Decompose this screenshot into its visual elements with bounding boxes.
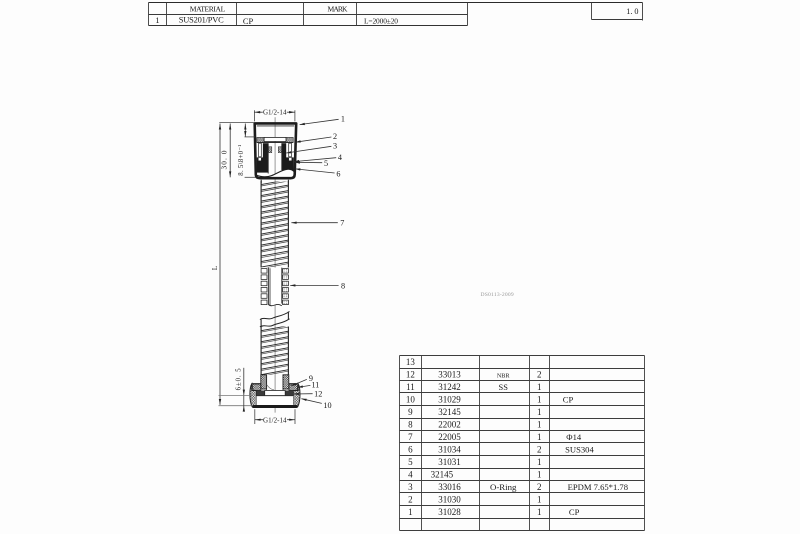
- svg-text:G1/2-14: G1/2-14: [263, 417, 287, 425]
- svg-text:SUS304: SUS304: [565, 444, 594, 454]
- svg-text:3: 3: [408, 482, 413, 492]
- svg-text:SUS201/PVC: SUS201/PVC: [179, 16, 224, 25]
- svg-text:2: 2: [333, 132, 337, 141]
- svg-text:1: 1: [537, 457, 542, 467]
- svg-text:31030: 31030: [438, 494, 461, 504]
- svg-text:12: 12: [314, 390, 322, 399]
- svg-text:2: 2: [537, 482, 542, 492]
- svg-text:30. 0: 30. 0: [220, 150, 228, 169]
- svg-text:MARK: MARK: [328, 5, 349, 14]
- svg-text:6±0. 5: 6±0. 5: [236, 368, 243, 391]
- svg-text:CP: CP: [243, 17, 254, 26]
- svg-text:1. 0: 1. 0: [626, 7, 638, 16]
- svg-text:1: 1: [537, 382, 542, 392]
- svg-text:1: 1: [537, 407, 542, 417]
- svg-text:NBR: NBR: [497, 372, 511, 379]
- svg-text:8: 8: [408, 419, 413, 429]
- svg-text:O-Ring: O-Ring: [490, 482, 517, 492]
- svg-text:L=2000±20: L=2000±20: [364, 16, 398, 25]
- svg-text:6: 6: [336, 170, 340, 179]
- svg-text:1: 1: [155, 16, 159, 25]
- svg-text:SS: SS: [499, 383, 509, 392]
- svg-text:CP: CP: [569, 507, 580, 517]
- svg-text:9: 9: [408, 407, 413, 417]
- svg-text:2: 2: [537, 444, 542, 454]
- svg-text:33016: 33016: [438, 482, 461, 492]
- svg-text:7: 7: [340, 219, 344, 228]
- svg-text:8. 5\8+0⁻¹: 8. 5\8+0⁻¹: [238, 145, 245, 176]
- svg-text:13: 13: [406, 357, 416, 367]
- svg-text:DS0113-2009: DS0113-2009: [481, 292, 514, 298]
- svg-text:31028: 31028: [438, 507, 461, 517]
- svg-text:12: 12: [406, 369, 415, 379]
- svg-text:5: 5: [324, 159, 328, 168]
- svg-text:31242: 31242: [438, 382, 461, 392]
- svg-text:EPDM 7.65*1.78: EPDM 7.65*1.78: [568, 482, 628, 492]
- svg-text:32145: 32145: [431, 469, 454, 479]
- svg-text:1: 1: [408, 507, 413, 517]
- svg-text:5: 5: [408, 457, 413, 467]
- svg-text:1: 1: [537, 432, 542, 442]
- svg-text:1: 1: [341, 115, 345, 124]
- svg-text:1: 1: [537, 494, 542, 504]
- svg-text:2: 2: [537, 369, 542, 379]
- svg-text:1: 1: [537, 469, 542, 479]
- svg-text:1: 1: [537, 419, 542, 429]
- svg-text:22005: 22005: [438, 432, 461, 442]
- svg-text:10: 10: [406, 394, 416, 404]
- svg-text:11: 11: [311, 381, 319, 390]
- svg-text:4: 4: [408, 469, 413, 479]
- svg-text:7: 7: [408, 432, 413, 442]
- svg-text:6: 6: [408, 444, 413, 454]
- svg-text:4: 4: [338, 153, 342, 162]
- svg-text:8: 8: [341, 281, 345, 290]
- svg-text:3: 3: [333, 142, 337, 151]
- svg-text:CP: CP: [563, 394, 574, 404]
- svg-text:1: 1: [537, 507, 542, 517]
- svg-text:Φ14: Φ14: [566, 432, 582, 442]
- svg-text:11: 11: [406, 382, 415, 392]
- svg-text:31031: 31031: [438, 457, 461, 467]
- svg-text:22002: 22002: [438, 419, 461, 429]
- svg-text:G1/2-14: G1/2-14: [263, 109, 287, 117]
- svg-text:31029: 31029: [438, 394, 461, 404]
- svg-text:32145: 32145: [438, 407, 461, 417]
- svg-text:33013: 33013: [438, 369, 461, 379]
- svg-text:10: 10: [323, 401, 331, 410]
- svg-text:1: 1: [537, 394, 542, 404]
- svg-text:MATERIAL: MATERIAL: [190, 5, 226, 14]
- svg-text:2: 2: [408, 494, 413, 504]
- svg-text:31034: 31034: [438, 444, 461, 454]
- svg-text:L: L: [210, 265, 219, 270]
